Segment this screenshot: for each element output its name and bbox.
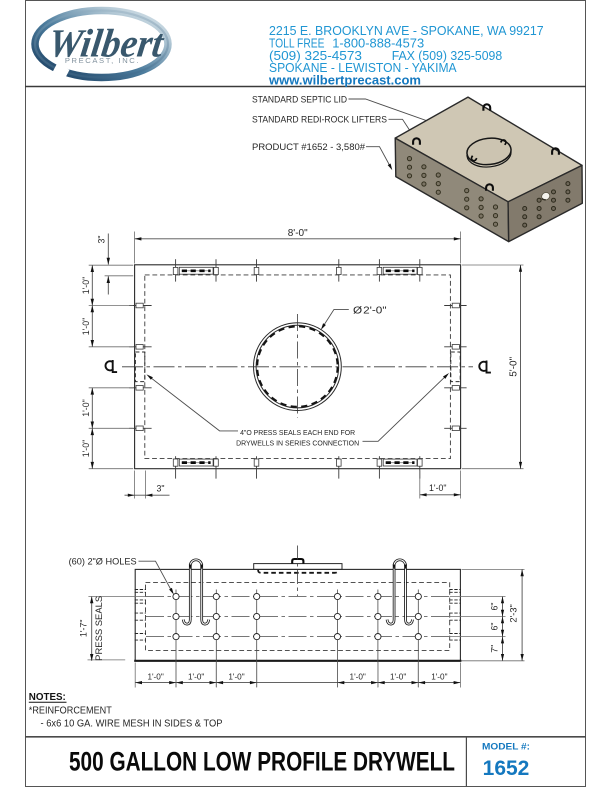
- svg-text:3": 3": [156, 484, 164, 494]
- svg-text:5'-0": 5'-0": [508, 356, 519, 376]
- svg-text:7": 7": [490, 645, 500, 653]
- svg-text:3": 3": [97, 235, 107, 243]
- svg-text:www.wilbertprecast.com: www.wilbertprecast.com: [268, 73, 421, 88]
- svg-text:1'-0": 1'-0": [81, 399, 91, 417]
- svg-text:PRESS SEALS: PRESS SEALS: [94, 596, 104, 661]
- svg-text:6": 6": [490, 622, 500, 630]
- svg-text:1'-0": 1'-0": [147, 673, 163, 682]
- svg-text:1'-0": 1'-0": [81, 440, 91, 458]
- svg-text:- 6x6 10 GA. WIRE MESH IN SIDE: - 6x6 10 GA. WIRE MESH IN SIDES & TOP: [41, 718, 223, 729]
- svg-text:NOTES:: NOTES:: [29, 692, 66, 703]
- svg-text:6": 6": [490, 602, 500, 610]
- svg-text:PRECAST, INC.: PRECAST, INC.: [65, 56, 140, 65]
- svg-text:1'-0": 1'-0": [431, 673, 447, 682]
- svg-text:1'-0": 1'-0": [429, 483, 447, 493]
- svg-text:500 GALLON LOW PROFILE DRYWELL: 500 GALLON LOW PROFILE DRYWELL: [69, 747, 455, 777]
- svg-text:1'-0": 1'-0": [228, 673, 244, 682]
- svg-text:STANDARD SEPTIC LID: STANDARD SEPTIC LID: [252, 94, 347, 105]
- svg-text:4"O PRESS SEALS EACH END FOR: 4"O PRESS SEALS EACH END FOR: [240, 430, 355, 437]
- svg-text:STANDARD REDI-ROCK LIFTERS: STANDARD REDI-ROCK LIFTERS: [252, 115, 387, 126]
- svg-text:1652: 1652: [483, 757, 530, 780]
- svg-text:1'-0": 1'-0": [350, 673, 366, 682]
- svg-text:1'-0": 1'-0": [81, 318, 91, 336]
- svg-text:MODEL #:: MODEL #:: [482, 742, 530, 752]
- svg-text:DRYWELLS IN SERIES CONNECTION: DRYWELLS IN SERIES CONNECTION: [236, 441, 359, 448]
- svg-text:1'-0": 1'-0": [81, 277, 91, 295]
- svg-text:1'-0": 1'-0": [188, 673, 204, 682]
- svg-text:1'-7": 1'-7": [79, 620, 89, 638]
- svg-text:(60) 2"Ø HOLES: (60) 2"Ø HOLES: [69, 556, 137, 567]
- svg-text:2'-3": 2'-3": [509, 604, 519, 623]
- svg-text:1'-0": 1'-0": [390, 673, 406, 682]
- svg-text:Ø 2'-0": Ø 2'-0": [353, 306, 387, 317]
- svg-text:PRODUCT #1652 - 3,580#: PRODUCT #1652 - 3,580#: [252, 142, 366, 153]
- svg-text:*REINFORCEMENT: *REINFORCEMENT: [29, 706, 112, 717]
- svg-text:8'-0": 8'-0": [288, 228, 308, 239]
